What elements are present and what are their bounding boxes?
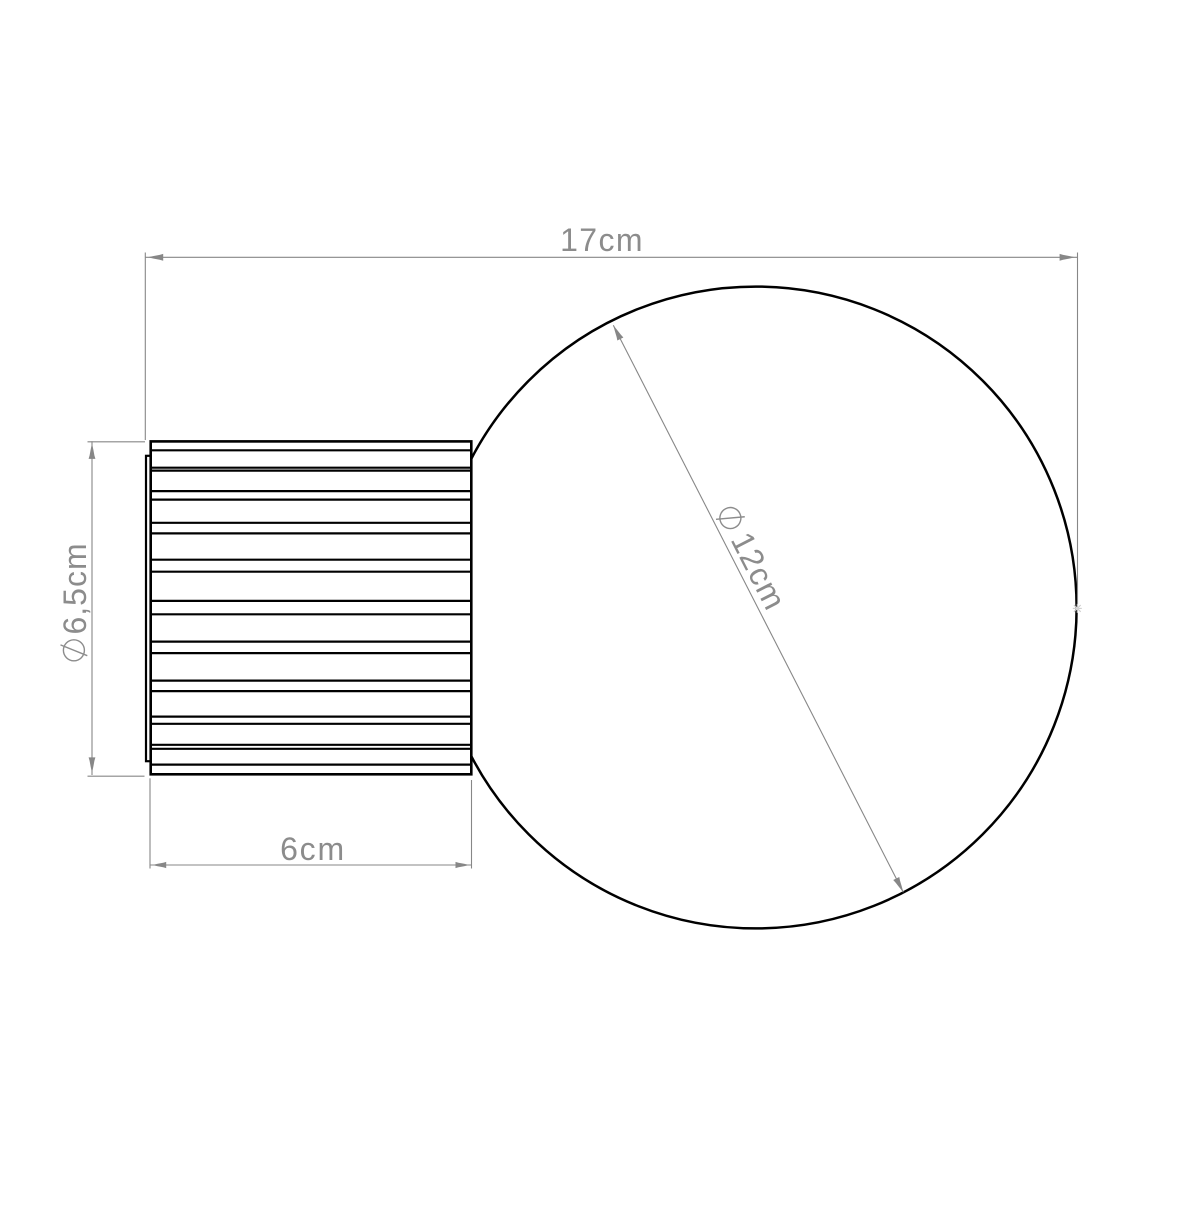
svg-text:6cm: 6cm [280, 831, 346, 867]
svg-text:6,5cm: 6,5cm [57, 542, 93, 634]
svg-text:17cm: 17cm [560, 222, 644, 258]
